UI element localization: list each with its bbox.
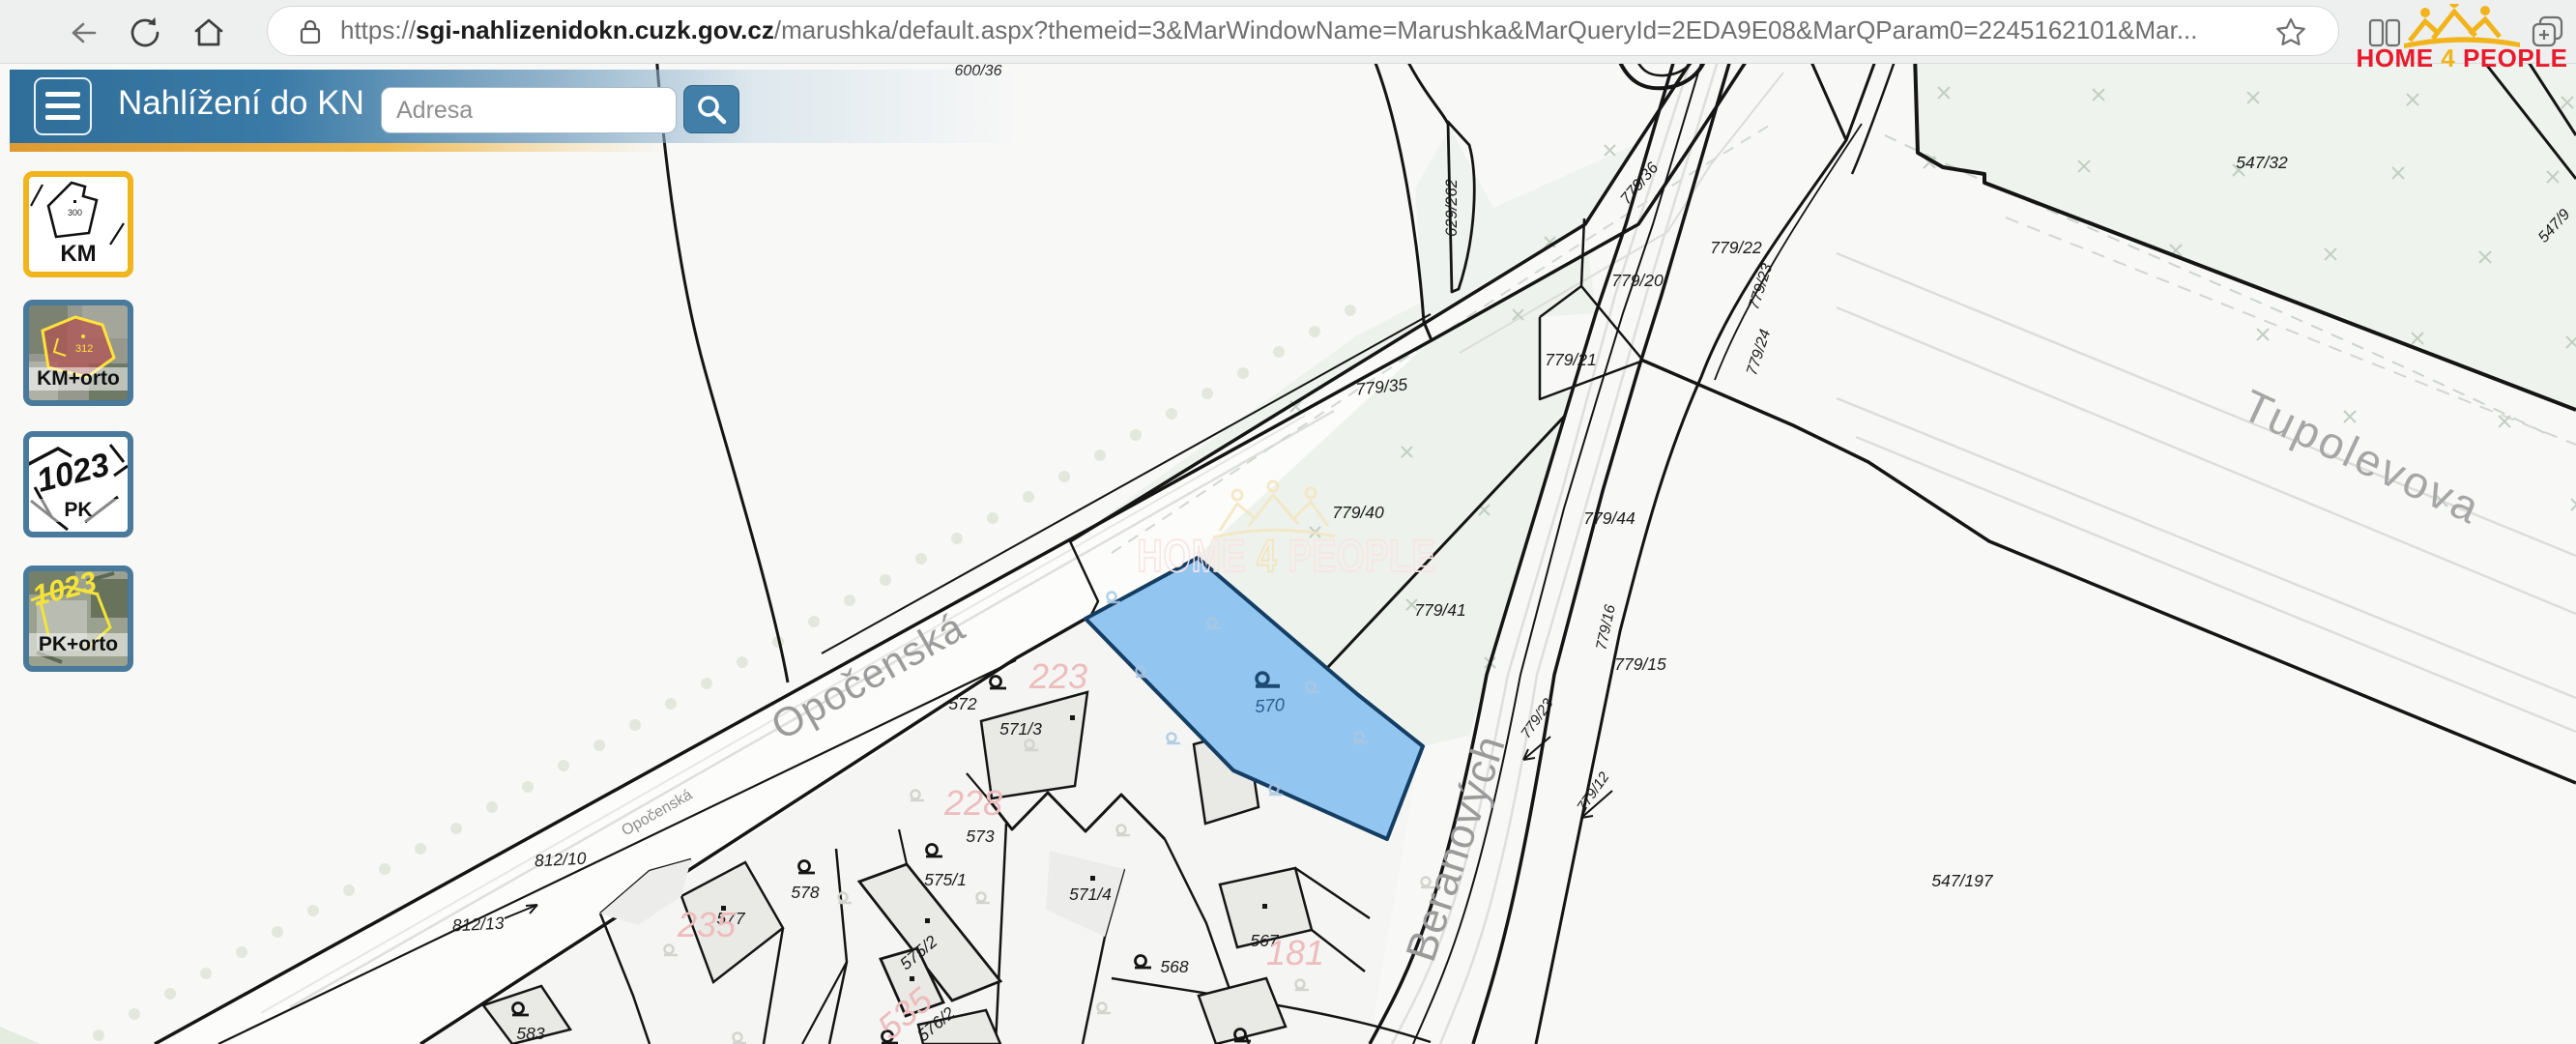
svg-text:228: 228 [943,783,1002,823]
svg-text:HOME 4 PEOPLE: HOME 4 PEOPLE [1137,531,1435,581]
svg-text:779/15: 779/15 [1614,654,1666,674]
svg-text:578: 578 [791,883,819,902]
svg-text:779/40: 779/40 [1332,503,1384,522]
svg-text:812/10: 812/10 [534,849,587,871]
svg-text:312: 312 [75,343,93,355]
svg-text:779/20: 779/20 [1611,271,1664,290]
svg-text:629/262: 629/262 [1443,179,1461,237]
svg-text:568: 568 [1160,957,1188,976]
svg-text:300: 300 [68,208,82,217]
svg-text:235: 235 [677,905,737,944]
svg-text:779/22: 779/22 [1710,238,1762,257]
svg-text:575/1: 575/1 [924,870,967,889]
svg-text:779/41: 779/41 [1414,600,1466,620]
svg-text:812/13: 812/13 [451,913,505,936]
svg-text:779/44: 779/44 [1583,508,1635,528]
svg-text:547/197: 547/197 [1931,871,1994,890]
svg-text:779/21: 779/21 [1545,350,1597,369]
svg-text:583: 583 [516,1024,544,1043]
svg-text:547/32: 547/32 [2236,153,2288,172]
svg-text:571/4: 571/4 [1069,884,1112,904]
svg-text:571/3: 571/3 [999,719,1042,739]
svg-text:181: 181 [1266,933,1324,972]
svg-text:573: 573 [966,826,994,846]
svg-text:223: 223 [1028,656,1087,696]
svg-text:570: 570 [1254,694,1286,716]
svg-text:572: 572 [948,694,976,713]
